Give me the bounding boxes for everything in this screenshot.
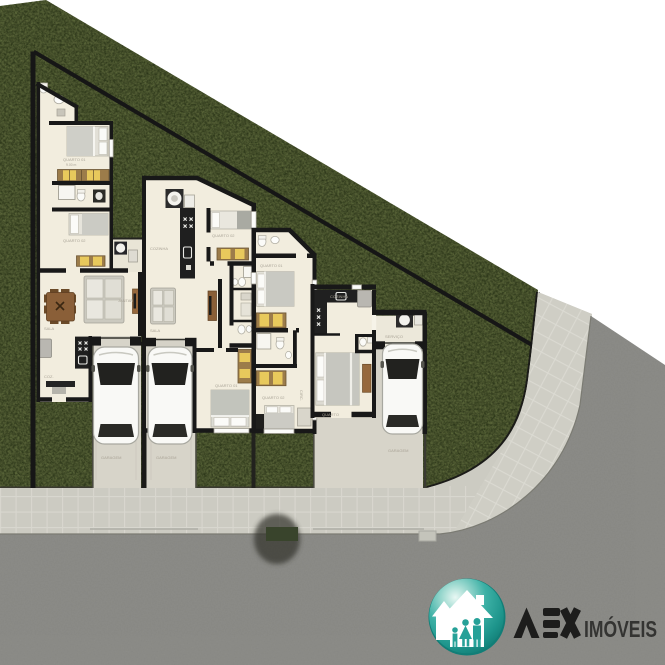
svg-text:QUARTO 02: QUARTO 02 xyxy=(262,395,285,400)
svg-text:COZ.: COZ. xyxy=(44,374,54,379)
svg-text:JANTAR: JANTAR xyxy=(118,298,133,303)
svg-text:QUARTO 01: QUARTO 01 xyxy=(260,263,283,268)
svg-text:COZINHA: COZINHA xyxy=(150,246,168,251)
svg-text:QUARTO: QUARTO xyxy=(322,412,339,417)
svg-text:SALA: SALA xyxy=(150,328,161,333)
svg-text:COZINHA: COZINHA xyxy=(330,294,348,299)
svg-text:CIRC.: CIRC. xyxy=(299,390,304,401)
svg-text:QUARTO 01: QUARTO 01 xyxy=(215,383,238,388)
svg-text:9.00 m: 9.00 m xyxy=(66,163,77,167)
svg-text:QUARTO 02: QUARTO 02 xyxy=(63,238,86,243)
svg-text:GARAGEM: GARAGEM xyxy=(388,448,408,453)
svg-text:QUARTO 01: QUARTO 01 xyxy=(63,157,86,162)
svg-text:GARAGEM: GARAGEM xyxy=(156,455,176,460)
svg-text:GARAGEM: GARAGEM xyxy=(101,455,121,460)
svg-text:SALA: SALA xyxy=(44,326,55,331)
svg-text:IMÓVEIS: IMÓVEIS xyxy=(584,615,657,642)
svg-text:SERVIÇO: SERVIÇO xyxy=(385,334,403,339)
svg-text:QUARTO 02: QUARTO 02 xyxy=(212,233,235,238)
